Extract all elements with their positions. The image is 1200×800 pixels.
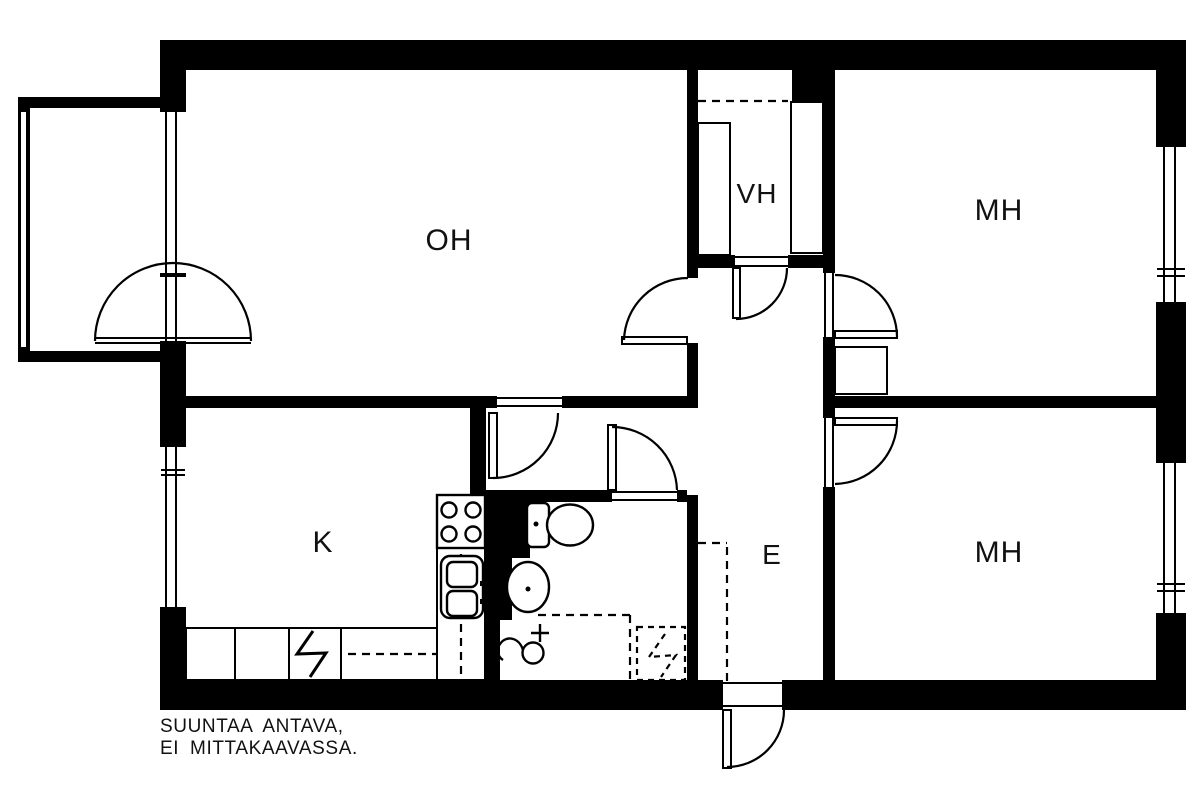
label-hallway: E: [762, 539, 782, 570]
label-closet: VH: [737, 178, 778, 209]
label-bedroom-bottom: MH: [975, 536, 1024, 569]
disclaimer: SUUNTAA ANTAVA, EI MITTAKAAVASSA.: [160, 716, 358, 759]
label-kitchen: K: [312, 526, 333, 559]
kitchen-appliance-column: [437, 495, 485, 680]
stove-icon: [437, 495, 485, 548]
wall-corridor-left-lower: [687, 495, 698, 683]
window-bedroom-bottom: [1156, 463, 1186, 613]
wardrobe: [791, 102, 823, 253]
wall-bath-top: [512, 490, 612, 502]
wall-oh-k-right: [562, 396, 687, 408]
toilet-icon: [527, 503, 593, 547]
balcony-railing-glazing: [21, 112, 26, 347]
wall-left-middle: [160, 341, 186, 447]
balcony-wall-top: [18, 97, 160, 108]
kitchen-counter: [186, 628, 437, 680]
washbasin-icon: [507, 562, 549, 612]
floor-plan: OH VH MH K E MH SUUNTAA ANTAVA, EI MITTA…: [0, 0, 1200, 800]
wall-oh-k-left: [186, 396, 497, 408]
wall-bath-top-right: [677, 490, 687, 502]
window-kitchen: [160, 447, 186, 607]
floor-plan-canvas: OH VH MH K E MH SUUNTAA ANTAVA, EI MITTA…: [0, 0, 1200, 800]
wall-kitchen-lobby: [470, 408, 486, 495]
wall-bath-left-upper: [486, 490, 512, 620]
wall-top: [160, 40, 1186, 70]
wall-corridor-left-mid: [687, 343, 698, 408]
disclaimer-line-1: SUUNTAA ANTAVA,: [160, 716, 344, 737]
wall-vh-bottom-left: [687, 255, 735, 268]
window-bedroom-top: [1156, 147, 1186, 302]
wall-left-lower: [160, 607, 186, 683]
wall-left-mullion: [160, 273, 186, 277]
wall-bottom: [160, 680, 1186, 710]
wall-bedroom-divider: [830, 396, 1156, 408]
double-sink-icon: [441, 556, 485, 618]
window-living-room: [160, 112, 186, 273]
bedroom-wardrobe: [835, 347, 887, 394]
label-living-room: OH: [426, 224, 473, 257]
balcony-wall-bottom: [18, 351, 160, 362]
wall-corridor-right-upper: [823, 70, 835, 273]
wardrobe: [698, 123, 730, 255]
label-bedroom-top: MH: [975, 194, 1024, 227]
wall-left-upper: [160, 40, 186, 112]
wall-corridor-right-lower: [823, 487, 835, 683]
wall-corridor-left-upper: [687, 70, 698, 278]
disclaimer-line-2: EI MITTAKAAVASSA.: [160, 738, 358, 759]
